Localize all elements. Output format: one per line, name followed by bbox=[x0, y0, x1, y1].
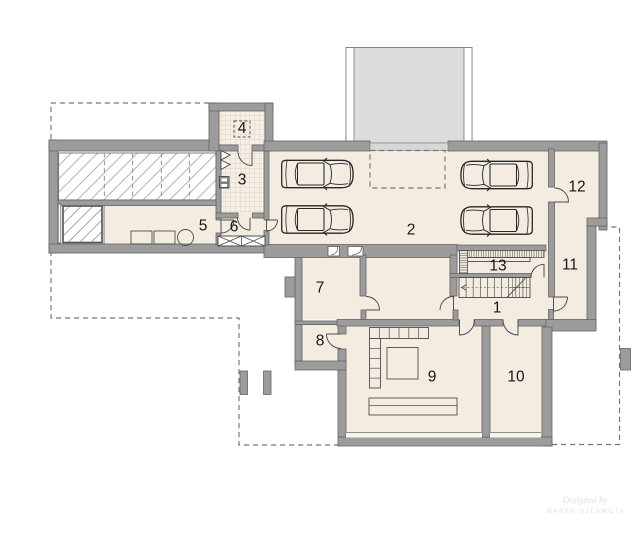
svg-text:9: 9 bbox=[428, 369, 437, 386]
svg-text:Designed by: Designed by bbox=[562, 495, 608, 505]
svg-text:4: 4 bbox=[238, 120, 247, 137]
svg-text:7: 7 bbox=[316, 280, 325, 297]
svg-text:11: 11 bbox=[562, 257, 578, 274]
svg-text:5: 5 bbox=[199, 218, 208, 235]
svg-text:13: 13 bbox=[489, 258, 506, 275]
svg-text:8: 8 bbox=[316, 333, 325, 350]
svg-text:1: 1 bbox=[493, 300, 502, 317]
svg-text:6: 6 bbox=[230, 219, 239, 236]
svg-text:3: 3 bbox=[238, 172, 247, 189]
svg-text:10: 10 bbox=[507, 369, 525, 386]
svg-text:12: 12 bbox=[568, 179, 585, 196]
svg-text:MAREK SZLAMOTA: MAREK SZLAMOTA bbox=[546, 508, 625, 515]
svg-text:2: 2 bbox=[407, 222, 416, 239]
